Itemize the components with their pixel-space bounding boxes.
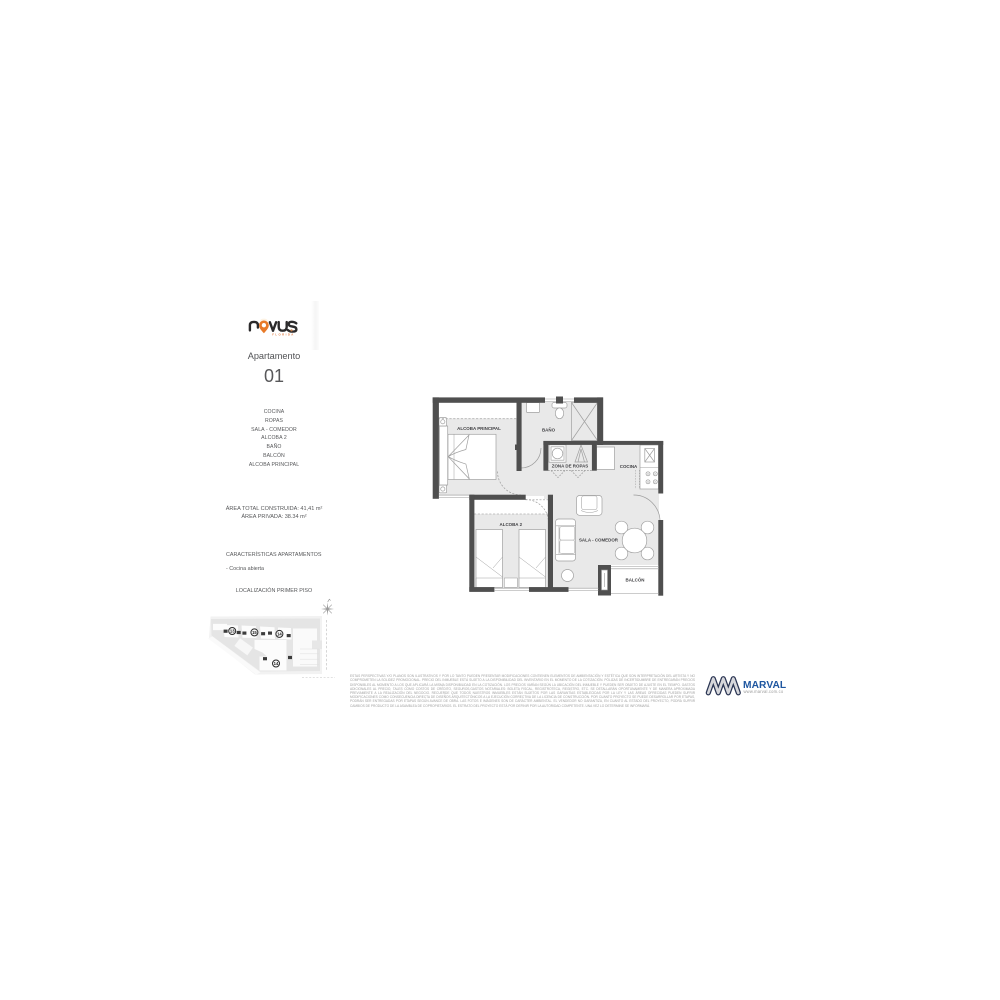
svg-text:COCINA: COCINA (620, 464, 638, 469)
svg-text:www.marval.com.co: www.marval.com.co (744, 689, 784, 694)
svg-text:FLORIDA: FLORIDA (272, 333, 295, 337)
svg-text:SALA - COMEDOR: SALA - COMEDOR (579, 537, 619, 542)
svg-text:13: 13 (230, 629, 235, 634)
svg-text:ALCOBA PRINCIPAL: ALCOBA PRINCIPAL (457, 426, 501, 431)
svg-text:ZONA DE ROPAS: ZONA DE ROPAS (552, 463, 589, 468)
svg-text:15: 15 (252, 630, 257, 635)
svg-text:14: 14 (274, 661, 279, 666)
svg-text:BAÑO: BAÑO (542, 427, 556, 433)
svg-text:BALCÓN: BALCÓN (626, 576, 645, 583)
svg-text:ALCOBA 2: ALCOBA 2 (500, 522, 523, 527)
svg-text:14: 14 (277, 632, 282, 637)
